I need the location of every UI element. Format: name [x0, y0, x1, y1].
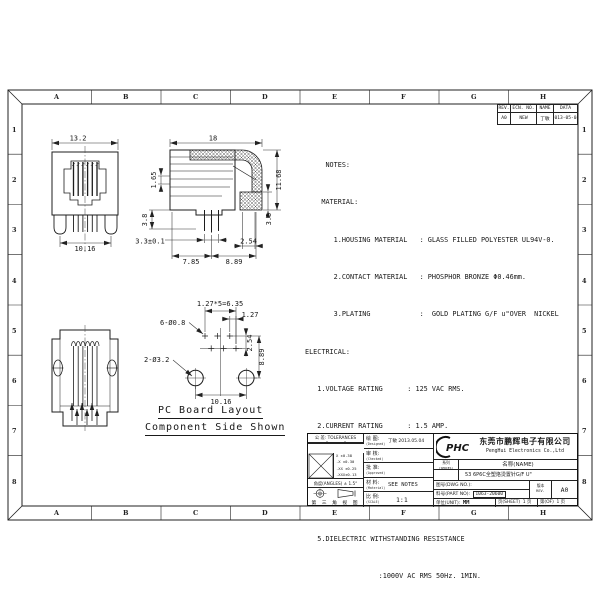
- dim-pcb-row-offset: 2.54: [246, 335, 254, 352]
- dim-side-tail: 3.8: [141, 214, 149, 227]
- zone-row-left-6: 6: [12, 377, 17, 385]
- tolerance-values: X ±0.38 .X ±0.30 .XX ±0.25 .XXX±0.13: [334, 453, 364, 479]
- note-line: 5.DIELECTRIC WITHSTANDING RESISTANCE: [305, 533, 559, 545]
- rev-label-cell: 版本 REV.: [530, 481, 552, 499]
- zone-row-left-7: 7: [12, 427, 17, 435]
- zone-row-right-6: 6: [582, 377, 587, 385]
- note-line: 2.CONTACT MATERIAL : PHOSPHOR BRONZE Φ0.…: [305, 271, 559, 283]
- zone-row-right-1: 1: [582, 126, 587, 134]
- dim-pcb-row-to-peg: 8.89: [258, 349, 266, 366]
- sheet-cell: 页(SHEET) 1 页: [496, 499, 538, 507]
- zone-row-left-1: 1: [12, 126, 17, 134]
- sheet-value: 1 页: [523, 500, 532, 505]
- revision-table: REV. ECN. NO. NAME DATA A0 NEW 丁敏 2013-0…: [497, 104, 578, 125]
- scale-value: 1:1: [396, 496, 408, 504]
- zone-col-bot-b: B: [123, 509, 129, 517]
- phc-logo-text: PHC: [446, 443, 470, 454]
- zone-row-right-8: 8: [582, 478, 587, 486]
- material-row: 材 料: (Material) SEE NOTES: [364, 478, 434, 492]
- third-angle-projection-icon: [308, 488, 364, 499]
- zone-row-left-8: 8: [12, 478, 17, 486]
- dim-front-width: 13.2: [70, 135, 87, 143]
- unit-label: 单位(UNIT):: [436, 501, 460, 506]
- note-line: 1.HOUSING MATERIAL : GLASS FILLED POLYES…: [305, 234, 559, 246]
- scale-sublabel: (SCALE): [366, 500, 379, 504]
- rev-header-data: DATA: [554, 105, 577, 113]
- checked-sublabel: (Checked): [366, 457, 383, 461]
- designed-row: 绘 图: (Designed) 丁敏 2013.05.04: [364, 434, 434, 449]
- pcb-caption-line1: PC Board Layout: [158, 405, 263, 419]
- drawing-sheet: 13.2 10.16 18 11.68 3: [0, 0, 600, 600]
- company-name-cn: 东莞市鹏辉电子有限公司: [474, 436, 576, 447]
- zone-col-top-b: B: [123, 93, 129, 101]
- dim-pcb-pin-holes: 6-Ø0.8: [160, 319, 185, 327]
- of-cell: 第(OF) 1 页: [538, 499, 577, 507]
- dim-side-boot: 3.5: [265, 213, 273, 226]
- dim-pcb-peg-holes: 2-Ø3.2: [144, 356, 169, 364]
- note-line: 2.CURRENT RATING : 1.5 AMP.: [305, 420, 559, 432]
- of-label: 第(OF): [540, 500, 554, 505]
- name-header: 名称(NAME): [459, 460, 577, 470]
- zone-row-right-3: 3: [582, 226, 587, 234]
- zone-row-left-2: 2: [12, 176, 17, 184]
- part-no-label: 料号(PART NO):: [436, 492, 470, 497]
- tolerances-label: 公 差: TOLERANCES: [308, 434, 364, 443]
- approved-sublabel: (Approved): [366, 471, 385, 475]
- front-view: [52, 146, 118, 252]
- rev-cell-data: 2013-05-04: [554, 113, 577, 124]
- zone-row-right-4: 4: [582, 277, 587, 285]
- zone-row-right-2: 2: [582, 176, 587, 184]
- part-no-row: 料号(PART NO): 1063-20600: [434, 490, 530, 499]
- phc-logo: PHC: [436, 435, 472, 459]
- rev-header-rev: REV.: [498, 105, 511, 113]
- rev-value: A0: [552, 481, 577, 499]
- note-line: :1000V AC RMS 50Hz. 1MIN.: [305, 570, 559, 582]
- dim-side-height: 11.68: [275, 169, 283, 190]
- zone-col-top-g: G: [471, 93, 477, 101]
- zone-col-bot-d: D: [262, 509, 268, 517]
- unit-value: MM: [463, 500, 470, 506]
- side-view: [170, 150, 262, 233]
- zone-col-bot-c: C: [193, 509, 198, 517]
- tolerance-row: .XXX±0.13: [336, 472, 363, 478]
- zone-row-left-4: 4: [12, 277, 17, 285]
- approved-row: 批 准: (Approved): [364, 463, 434, 478]
- projection-cell: 第 三 角 视 图: [308, 488, 364, 507]
- note-line: ELECTRICAL:: [305, 346, 559, 358]
- designed-label: 绘 图:: [366, 435, 379, 442]
- dim-front-peg-span: 10.16: [74, 245, 95, 253]
- designed-value: 丁敏 2013.05.04: [388, 438, 424, 444]
- crossed-box-icon: [308, 453, 334, 479]
- zone-col-top-a: A: [54, 93, 59, 101]
- note-line: MATERIAL:: [305, 196, 559, 208]
- dim-pcb-pitch: 1.27: [242, 311, 259, 319]
- pcb-top-view: [52, 325, 118, 431]
- dim-side-contact-gap: 1.65: [150, 172, 158, 189]
- unit-cell: 单位(UNIT): MM: [434, 499, 496, 507]
- rev-cell-name: 丁敏: [537, 113, 554, 124]
- zone-row-left-3: 3: [12, 226, 17, 234]
- dim-side-front-to-pin: 7.85: [183, 258, 200, 266]
- dim-pcb-pitch-total: 1.27*5=6.35: [197, 300, 243, 308]
- checked-row: 审 核: (Checked): [364, 449, 434, 463]
- material-label: 材 料:: [366, 479, 379, 486]
- checked-label: 审 核:: [366, 450, 379, 457]
- part-no-value: 1063-20600: [473, 491, 506, 498]
- rev-header-ecn: ECN. NO.: [511, 105, 537, 113]
- zone-col-top-c: C: [193, 93, 198, 101]
- zone-col-top-e: E: [332, 93, 337, 101]
- dim-side-pin-row: 3.3±0.1: [135, 238, 165, 246]
- title-block: 公 差: TOLERANCES X ±0.38 .X ±0.30 .XX ±0.…: [307, 433, 578, 506]
- designed-sublabel: (Designed): [366, 442, 385, 446]
- zone-row-left-5: 5: [12, 327, 17, 335]
- zone-row-right-7: 7: [582, 427, 587, 435]
- note-line: NOTES:: [305, 159, 559, 171]
- dim-side-standoff: 2.54: [240, 238, 257, 246]
- product-name: 53 6P6C全塑烙烫置针G/F U": [459, 470, 577, 481]
- dim-side-pin-to-back: 8.89: [226, 258, 243, 266]
- series-value-cell: [434, 470, 459, 481]
- dim-side-depth: 18: [209, 135, 217, 143]
- zone-col-top-h: H: [540, 93, 546, 101]
- company-name-en: PengHui Electronics Co.,Ltd: [474, 449, 576, 454]
- rev-sublabel: REV.: [530, 489, 551, 493]
- material-sublabel: (Material): [366, 486, 385, 490]
- notes-block: NOTES: MATERIAL: 1.HOUSING MATERIAL : GL…: [305, 134, 559, 600]
- zone-row-right-5: 5: [582, 327, 587, 335]
- tolerance-box: [308, 453, 334, 479]
- zone-col-top-f: F: [401, 93, 406, 101]
- rev-header-name: NAME: [537, 105, 554, 113]
- angles-tolerance: 角度(ANGLES) ± 1.5°: [308, 479, 364, 488]
- material-value: SEE NOTES: [388, 482, 418, 488]
- projection-label: 第 三 角 视 图: [308, 499, 363, 506]
- dwg-no-row: 图号(DWG NO.):: [434, 481, 530, 490]
- zone-col-top-d: D: [262, 93, 268, 101]
- rev-cell-ecn: NEW: [511, 113, 537, 124]
- rev-cell-rev: A0: [498, 113, 511, 124]
- approved-label: 批 准:: [366, 464, 379, 471]
- company-cell: PHC 东莞市鹏辉电子有限公司 PengHui Electronics Co.,…: [434, 434, 577, 460]
- note-line: 1.VOLTAGE RATING : 125 VAC RMS.: [305, 383, 559, 395]
- pcb-caption-line2: Component Side Shown: [145, 422, 285, 436]
- of-value: 1 页: [556, 500, 565, 505]
- series-cell: 系列 (SERIES): [434, 460, 459, 470]
- zone-col-bot-a: A: [54, 509, 59, 517]
- sheet-label: 页(SHEET): [498, 500, 520, 505]
- note-line: 3.PLATING : GOLD PLATING G/F u"OVER NICK…: [305, 308, 559, 320]
- scale-label: 比 例:: [366, 493, 379, 500]
- scale-row: 比 例: (SCALE) 1:1: [364, 492, 434, 507]
